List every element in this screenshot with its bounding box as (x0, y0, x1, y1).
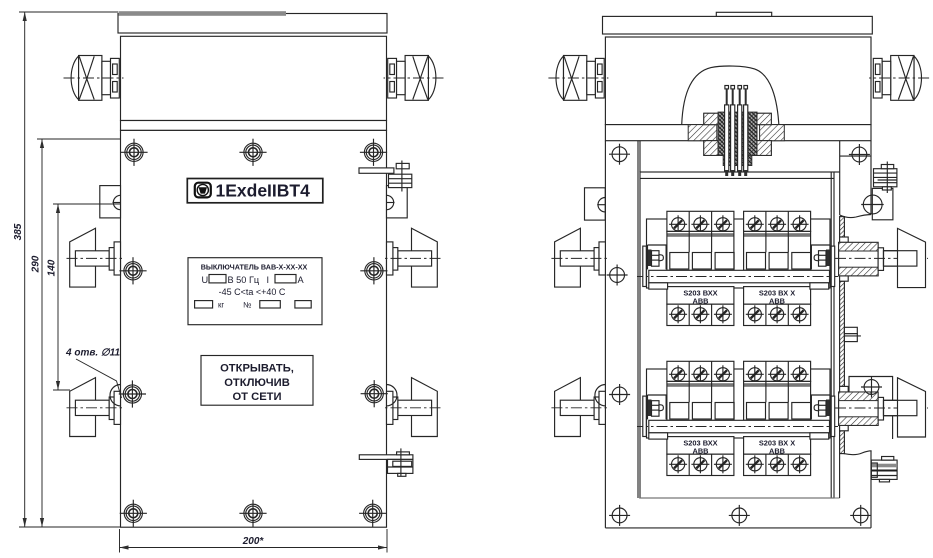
svg-text:№: № (243, 301, 251, 310)
svg-text:кг: кг (218, 301, 224, 310)
svg-text:ОТКРЫВАТЬ,: ОТКРЫВАТЬ, (220, 363, 294, 375)
svg-text:ВЫКЛЮЧАТЕЛЬ ВАВ-Х-ХХ-ХХ: ВЫКЛЮЧАТЕЛЬ ВАВ-Х-ХХ-ХХ (201, 262, 308, 271)
svg-text:385: 385 (13, 223, 24, 240)
svg-text:I: I (267, 275, 270, 285)
svg-text:А: А (298, 275, 305, 285)
svg-text:290: 290 (31, 255, 42, 273)
svg-text:АВВ: АВВ (692, 297, 708, 306)
svg-text:U: U (202, 275, 209, 285)
svg-text:4 отв. ∅11: 4 отв. ∅11 (65, 348, 120, 359)
svg-text:140: 140 (47, 259, 58, 276)
svg-text:ОТ СЕТИ: ОТ СЕТИ (232, 391, 281, 403)
svg-text:1ExdeIIBT4: 1ExdeIIBT4 (216, 181, 311, 201)
svg-text:ОТКЛЮЧИВ: ОТКЛЮЧИВ (224, 377, 290, 389)
svg-text:АВВ: АВВ (769, 297, 785, 306)
svg-text:АВВ: АВВ (692, 447, 708, 456)
svg-text:-45 С<tа <+40 С: -45 С<tа <+40 С (219, 287, 286, 297)
svg-text:АВВ: АВВ (769, 447, 785, 456)
svg-text:200*: 200* (242, 536, 265, 547)
svg-text:В 50 Гц: В 50 Гц (228, 275, 260, 285)
